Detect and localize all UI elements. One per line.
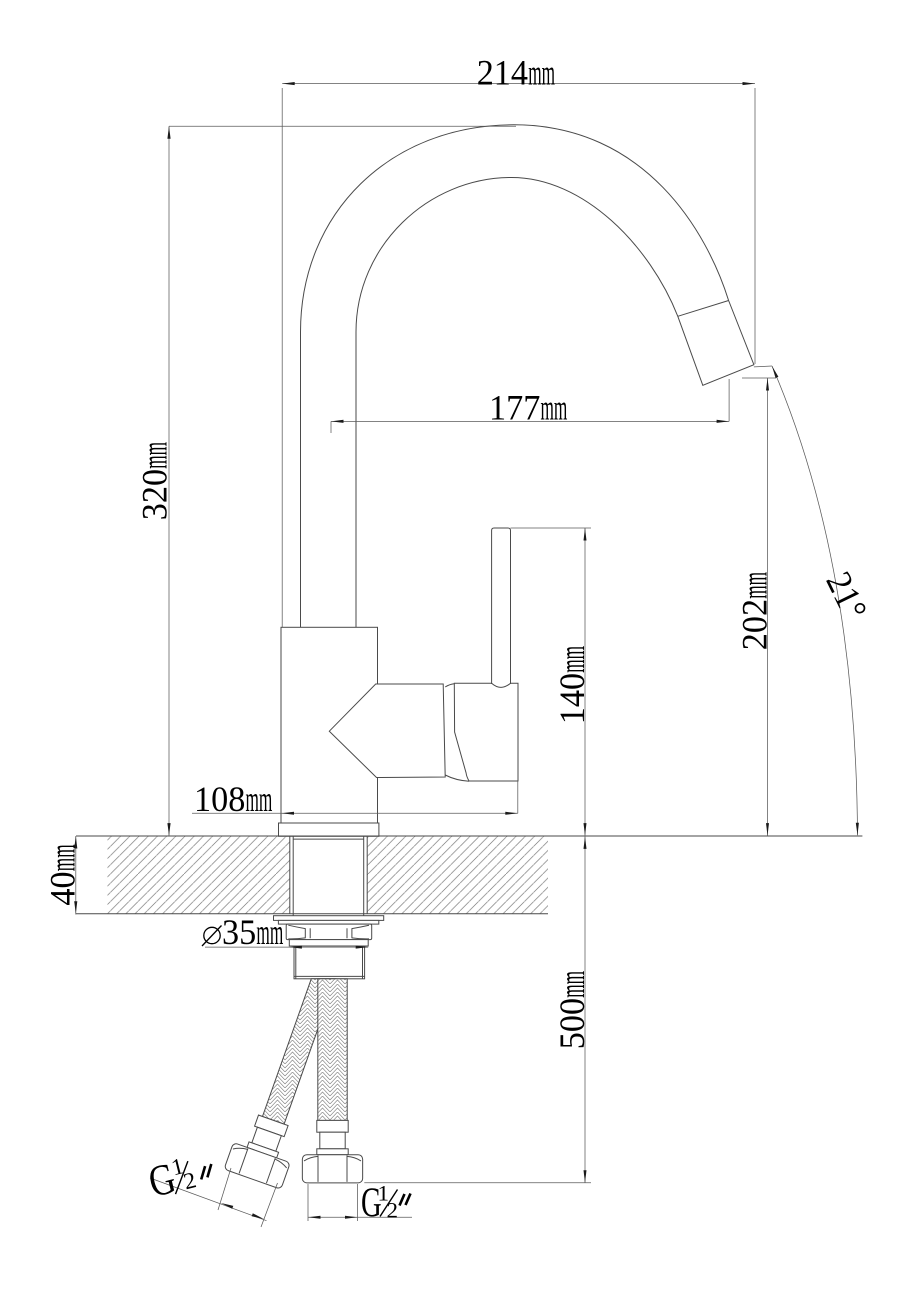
svg-text:mm: mm [246, 780, 273, 820]
svg-text:mm: mm [136, 442, 176, 469]
svg-text:mm: mm [256, 913, 283, 953]
svg-text:2: 2 [387, 1198, 399, 1222]
svg-text:202: 202 [735, 599, 775, 650]
svg-text:35: 35 [222, 912, 256, 952]
svg-text:108: 108 [194, 779, 245, 819]
svg-text:mm: mm [541, 389, 568, 429]
svg-text:mm: mm [553, 646, 593, 673]
svg-text:40: 40 [43, 871, 83, 905]
svg-text:140: 140 [552, 673, 592, 724]
svg-text:mm: mm [528, 54, 555, 94]
svg-text:214: 214 [477, 53, 528, 93]
svg-text:500: 500 [552, 998, 592, 1049]
svg-text:mm: mm [553, 971, 593, 998]
svg-text:320: 320 [135, 469, 175, 520]
svg-text:mm: mm [44, 844, 84, 871]
svg-text:mm: mm [736, 572, 776, 599]
svg-text:177: 177 [489, 388, 540, 428]
